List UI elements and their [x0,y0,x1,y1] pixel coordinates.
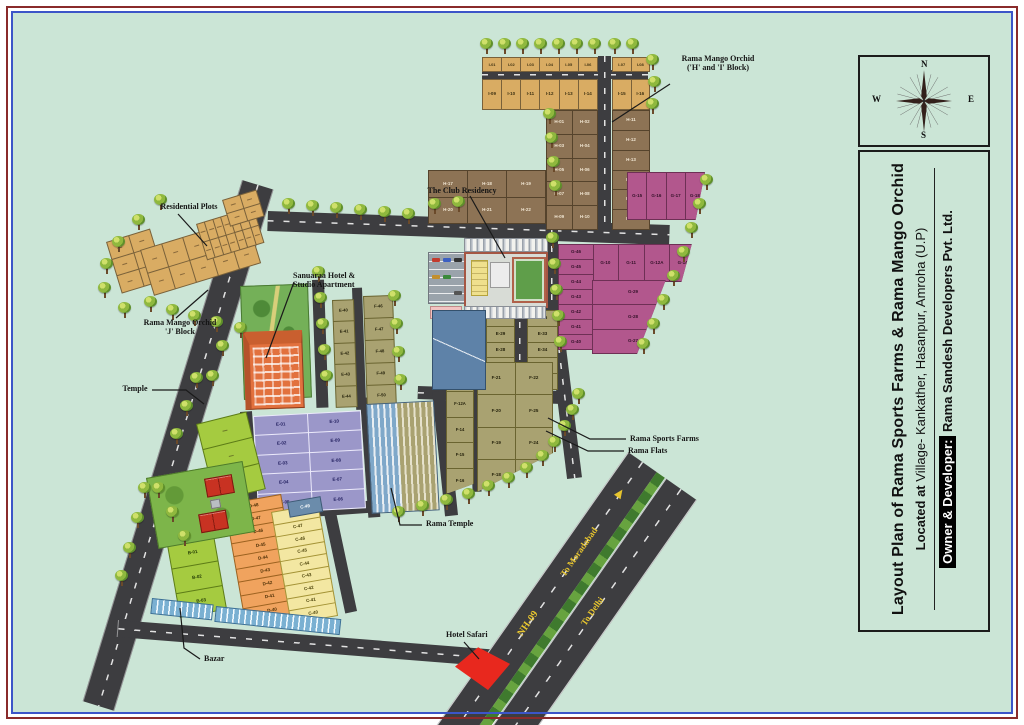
plot-number: G-43 [571,295,581,300]
plot-number: G-46 [571,250,581,255]
plot-number: G-29 [628,290,638,295]
club-house-row [464,238,548,252]
tree-icon [144,296,157,313]
car-icon [443,275,451,279]
tree-icon [657,294,670,311]
plot-number: H-04 [580,144,590,149]
plot-number: F-18 [492,473,501,478]
callout-hi-block-line2: ('H' and 'I' Block) [666,63,770,72]
plot-number: E-03 [278,461,288,466]
tree-icon [646,98,659,115]
plot: E-04 [257,472,310,493]
tree-icon [206,370,219,387]
tree-icon [316,318,329,335]
plot-number: E-07 [332,478,342,483]
tree-icon [608,38,621,55]
compass-rose-icon [889,66,959,136]
car-icon [454,258,462,262]
plot: F-49 [366,363,395,385]
club-building-yellow [471,260,488,296]
plot-number: E-09 [330,439,340,444]
club-building-white [490,262,510,288]
plot-number: E-02 [277,442,287,447]
tree-icon [648,76,661,93]
plot-number: E-33 [538,332,548,337]
plot-number: H-10 [580,215,590,220]
plot: H-19 [507,171,545,197]
plot: I-12 [540,80,558,109]
tree-icon [330,202,343,219]
plot-number: I-11 [527,92,535,97]
plot-number: C-44 [299,561,309,567]
plot: E-43 [335,364,356,385]
tree-icon [132,214,145,231]
plot: E-44 [336,386,357,407]
plot-number: F-19 [492,441,501,446]
plot-number: F-14 [456,428,465,432]
title-divider [934,168,935,610]
tree-icon [216,340,229,357]
tree-icon [667,270,680,287]
plot-number: I-09 [488,92,496,97]
plot: F-48 [366,340,395,362]
plot-number: G-28 [628,315,638,320]
plot: H-12 [613,131,649,150]
layout-plan-page: To MoradabadNH-09To DelhiI-01I-02I-03I-0… [0,0,1024,725]
plot: G-27 [593,330,673,353]
callout-residential-plots: Residential Plots [150,202,228,211]
plot: G-17 [667,173,685,219]
plot: E-34 [528,343,557,358]
plot-number: F-50 [377,394,386,399]
tree-icon [388,290,401,307]
tree-icon [234,322,247,339]
tree-icon [546,232,559,249]
callout-rama-flats: Rama Flats [628,446,698,455]
tree-icon [318,344,331,361]
owner-label-badge: Owner & Developer: [939,436,956,568]
tree-icon [498,38,511,55]
plot-number: F-16 [456,479,465,483]
plot-number: C-49 [300,504,310,510]
plot-number: I-04 [546,63,553,67]
plot: F-14 [447,418,473,442]
plot: H-09 [547,206,572,229]
tree-icon [428,198,441,215]
plot-number: G-11 [626,261,636,266]
plot-number: E-41 [340,330,349,335]
plot: G-46 [559,245,593,259]
water-plot [432,310,486,390]
plot-number: F-46 [374,305,383,310]
plot-number: F-12A [454,402,466,406]
plot: I-04 [540,58,558,71]
plot: H-13 [613,151,649,170]
callout-hotel-safari: Hotel Safari [446,630,506,639]
plan-title: Layout Plan of Rama Sports Farms & Rama … [890,154,908,624]
tree-icon [502,472,515,489]
tree-icon [534,38,547,55]
tree-icon [178,530,191,547]
plot-number: C-42 [304,586,314,592]
plot-number: H-12 [626,138,636,143]
plot: E-41 [334,322,355,343]
plot: I-09 [483,80,501,109]
plot-number: F-22 [529,376,538,381]
block-h-low: H-17H-18H-19H-20H-21H-22 [428,170,546,224]
tree-icon [402,208,415,225]
plot: I-01 [483,58,501,71]
plot: I-13 [560,80,578,109]
plot: I-15 [613,80,631,109]
plot-number: I-15 [618,92,626,97]
tree-icon [166,506,179,523]
plot-number: D-43 [260,568,270,574]
tree-icon [626,38,639,55]
tree-icon [452,196,465,213]
rama-flats-block [366,400,440,513]
plot-number: F-24 [529,441,538,446]
plot: E-29 [487,327,514,342]
block-g-col: G-46G-45G-44G-43G-42G-41G-40 [558,244,594,350]
plot-number: G-45 [571,265,581,270]
farmhouse-icon [198,510,229,534]
plot-number: F-15 [456,453,465,457]
plot: G-15 [628,173,646,219]
owner-line: Owner & Developer: Rama Sandesh Develope… [940,154,955,624]
sanuaraa-hotel-building [243,330,305,410]
plot: I-11 [521,80,539,109]
tree-icon [558,420,571,437]
plot-number: G-15 [632,194,642,199]
plot-number: F-25 [529,409,538,414]
owner-value: Rama Sandesh Developers Pvt. Ltd. [940,210,955,435]
plot: I-14 [579,80,597,109]
plot-number: E-29 [496,332,506,337]
callout-hi-block: Rama Mango Orchid ('H' and 'I' Block) [666,54,770,72]
plot: F-25 [516,395,553,426]
plot-number: G-10 [600,261,610,266]
plot-number: I-12 [546,92,554,97]
callout-temple: Temple [116,384,154,393]
plot-number: I-06 [584,63,591,67]
plot: G-12A [645,245,670,281]
tree-icon [138,482,151,499]
plot-number: E-10 [329,419,339,424]
flats-strips [397,401,439,511]
tree-icon [520,462,533,479]
tree-icon [572,388,585,405]
plot-number: F-20 [492,409,501,414]
plot-number: H-02 [580,120,590,125]
plot-number: E-40 [339,309,348,314]
tree-icon [392,346,405,363]
tree-icon [462,488,475,505]
tree-icon [306,200,319,217]
block-i-row2: I-15I-16 [612,79,650,110]
tree-icon [543,108,556,125]
tree-icon [693,198,706,215]
plot: I-05 [560,58,578,71]
plot-number: C-47 [293,524,303,530]
plot-number: D-45 [255,542,265,548]
compass-north-label: N [921,59,928,69]
plot-number: E-06 [333,497,343,502]
compass-east-label: E [968,94,974,104]
plot: F-12A [447,392,473,416]
callout-rama-temple: Rama Temple [426,519,492,528]
tree-icon [416,500,429,517]
plot: E-09 [308,431,361,452]
highway-nh09: To MoradabadNH-09To Delhi [436,452,702,725]
plot-number: E-43 [341,373,350,378]
tree-icon [170,428,183,445]
plot-number: E-08 [331,458,341,463]
car-icon [443,258,451,262]
plot-number: I-03 [527,63,534,67]
tree-icon [549,180,562,197]
callout-club-residency: The Club Residency [416,186,508,195]
tree-icon [112,236,125,253]
tree-icon [700,174,713,191]
plot-number: G-44 [571,280,581,285]
club-sports-field [512,257,546,303]
tree-icon [548,436,561,453]
tree-icon [123,542,136,559]
tree-icon [482,480,495,497]
plan-location: Located at Village- Kankather, Hasanpur,… [913,154,928,624]
compass-west-label: W [872,94,881,104]
plot: I-03 [521,58,539,71]
tree-icon [354,204,367,221]
plot: I-07 [613,58,631,71]
block-g-low: G-29G-28G-27 [592,280,674,354]
tree-icon [131,512,144,529]
plot-number: H-13 [626,158,636,163]
plot-number: E-42 [340,351,349,356]
tree-icon [100,258,113,275]
plot: H-02 [573,111,598,134]
plot: H-04 [573,135,598,158]
plot: F-19 [478,428,515,459]
plot: H-21 [468,198,506,224]
plot: E-03 [256,453,309,474]
tree-icon [394,374,407,391]
plot-number: G-12A [650,261,663,266]
tree-icon [118,302,131,319]
plot-number: E-34 [538,348,548,353]
plot-number: I-08 [637,63,644,67]
plot: E-33 [528,327,557,342]
plot-number: F-49 [376,371,385,376]
tree-icon [588,38,601,55]
plot-number: E-44 [342,394,351,399]
plot-number: H-06 [580,168,590,173]
callout-sanuaraa-hotel: Sanuaraa Hotel & Studio Apartment [293,271,377,289]
plot: F-22 [516,363,553,394]
plot-number: H-11 [626,118,636,123]
plot-number: E-01 [276,422,286,427]
plot: F-15 [447,443,473,467]
callout-bazar: Bazar [204,654,240,663]
plot-number: E-28 [496,348,506,353]
plot: G-44 [559,275,593,289]
tree-icon [378,206,391,223]
tree-icon [566,404,579,421]
plot-number: G-41 [571,325,581,330]
tree-icon [647,318,660,335]
tree-icon [554,336,567,353]
plot-number: I-01 [489,63,496,67]
tree-icon [547,156,560,173]
plot-number: C-45 [297,549,307,555]
tree-icon [392,506,405,523]
tree-icon [646,54,659,71]
tree-icon [677,246,690,263]
plot: E-02 [255,434,308,455]
plot: E-08 [310,450,363,471]
title-panel: Layout Plan of Rama Sports Farms & Rama … [860,154,984,624]
tree-icon [190,372,203,389]
plot: E-42 [335,343,356,364]
plot-number: G-40 [571,340,581,345]
plot-number: I-16 [636,92,644,97]
tree-icon [480,38,493,55]
plot-number: I-02 [508,63,515,67]
tree-icon [152,482,165,499]
plot-number: I-07 [618,63,625,67]
tree-icon [282,198,295,215]
plot: H-10 [573,206,598,229]
farm-shed [210,499,221,510]
plot-number: B-02 [192,574,202,580]
block-i-row1: I-01I-02I-03I-04I-05I-06 [482,57,598,72]
tree-icon [320,370,333,387]
hotel-windows [253,346,301,406]
plot-number: F-21 [492,376,501,381]
plot: G-43 [559,290,593,304]
callout-rama-sports-farms: Rama Sports Farms [630,434,725,443]
tree-icon [570,38,583,55]
tree-icon [552,38,565,55]
plot: G-10 [593,245,618,281]
plot-number: H-19 [521,182,531,187]
club-parking-lot [428,252,466,304]
plot: G-16 [647,173,665,219]
tree-icon [637,338,650,355]
tree-icon [180,400,193,417]
plot: H-22 [507,198,545,224]
plot-number: G-17 [671,194,681,199]
plot: E-28 [487,343,514,358]
plot: E-01 [254,414,307,435]
plot-number: F-48 [376,349,385,354]
plot-number: H-22 [521,208,531,213]
tree-icon [98,282,111,299]
compass-box: N S W E [858,55,990,147]
plot-number: F-47 [375,327,384,332]
block-f-grid: F-21F-22F-20F-25F-19F-24F-18F-23 [477,362,553,492]
tree-icon [440,494,453,511]
tree-icon [115,570,128,587]
block-i-row1: I-07I-08 [612,57,650,72]
plot: H-11 [613,111,649,130]
plot: E-07 [311,470,364,491]
plot-number: G-16 [651,194,661,199]
plot-number: B-01 [188,550,198,556]
plot: H-06 [573,159,598,182]
car-icon [432,258,440,262]
club-compound [464,252,548,308]
compass-south-label: S [921,130,926,140]
tree-icon [552,310,565,327]
tree-icon [685,222,698,239]
block-e-strip: E-40E-41E-42E-43E-44 [332,299,358,408]
plot-number: I-13 [565,92,573,97]
plot-number: C-43 [302,573,312,579]
plot-number: D-42 [262,581,272,587]
farmhouse-icon [204,474,235,498]
plot-number: E-04 [279,480,289,485]
plot: G-45 [559,260,593,274]
callout-j-block: Rama Mango Orchid 'J' Block [130,318,230,336]
tree-icon [548,258,561,275]
plot: F-20 [478,395,515,426]
plot-number: C-41 [306,598,316,604]
plot: E-10 [307,411,360,432]
tree-icon [516,38,529,55]
plot-number: I-10 [507,92,515,97]
plot-number: I-05 [565,63,572,67]
plot-number: C-46 [295,536,305,542]
plot-number: G-42 [571,310,581,315]
block-i-row2: I-09I-10I-11I-12I-13I-14 [482,79,598,110]
plot: H-08 [573,182,598,205]
plot-number: H-09 [554,215,564,220]
callout-hi-block-line1: Rama Mango Orchid [666,54,770,63]
plot-number: I-14 [584,92,592,97]
tree-icon [545,132,558,149]
tree-icon [390,318,403,335]
tree-icon [314,292,327,309]
plot: I-10 [502,80,520,109]
tree-icon [550,284,563,301]
car-icon [454,291,462,295]
plot-number: H-21 [482,208,492,213]
road [598,56,611,232]
plot: E-40 [333,300,354,321]
plot-number: D-41 [265,594,275,600]
plot-number: D-44 [258,555,268,561]
car-icon [432,275,440,279]
plot: G-11 [619,245,644,281]
plot: I-02 [502,58,520,71]
plot: I-06 [579,58,597,71]
plot-number: H-08 [580,192,590,197]
